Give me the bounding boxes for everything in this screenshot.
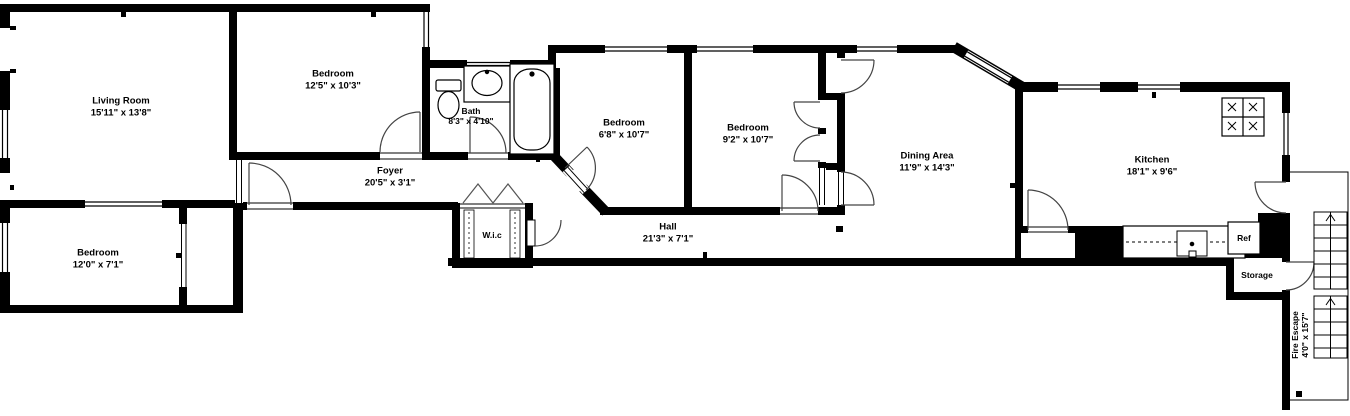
fixture-name: Ref xyxy=(1237,233,1251,243)
room-name: Dining Area xyxy=(899,151,954,163)
fixtures xyxy=(436,64,1348,400)
door-arc xyxy=(794,135,820,161)
door-arc xyxy=(841,172,874,205)
room-label-foyer: Foyer 20'5" x 3'1" xyxy=(365,166,416,189)
room-dims: 21'3" x 7'1" xyxy=(643,233,694,245)
sink-icon xyxy=(464,66,510,102)
floor-plan-drawing xyxy=(0,0,1350,416)
room-name: Bedroom xyxy=(305,69,361,81)
room-dims: 15'11" x 13'8" xyxy=(91,107,152,119)
room-name: Hall xyxy=(643,222,694,234)
door-arc xyxy=(782,175,818,211)
room-label-wic: W.i.c xyxy=(482,230,501,240)
door-arc xyxy=(841,60,874,93)
fridge-label: Ref xyxy=(1237,233,1251,243)
room-label-bedroom-mid-left: Bedroom 6'8" x 10'7" xyxy=(599,118,650,141)
door-arc xyxy=(1286,262,1314,290)
room-name: Bath xyxy=(448,106,493,116)
room-name: Foyer xyxy=(365,166,416,178)
room-dims: 4'0" x 15'7" xyxy=(1300,311,1310,359)
door-arc xyxy=(1028,190,1068,230)
floor-plan: Living Room 15'11" x 13'8" Bedroom 12'5"… xyxy=(0,0,1350,416)
room-label-living-room: Living Room 15'11" x 13'8" xyxy=(91,96,152,119)
door-arc xyxy=(527,220,561,246)
room-dims: 8'3" x 4'10" xyxy=(448,116,493,126)
kitchen-counter xyxy=(1123,226,1245,258)
room-dims: 9'2" x 10'7" xyxy=(723,134,774,146)
door-arc xyxy=(1255,182,1286,213)
room-name: W.i.c xyxy=(482,230,501,240)
room-name: Fire Escape xyxy=(1290,311,1300,359)
room-label-storage: Storage xyxy=(1241,270,1273,280)
room-label-hall: Hall 21'3" x 7'1" xyxy=(643,222,694,245)
room-label-bedroom-bottom: Bedroom 12'0" x 7'1" xyxy=(73,248,124,271)
room-name: Storage xyxy=(1241,270,1273,280)
kitchen-sink-icon xyxy=(1177,231,1207,257)
room-name: Kitchen xyxy=(1127,155,1178,167)
stairs-icon xyxy=(1314,212,1347,358)
room-dims: 18'1" x 9'6" xyxy=(1127,166,1178,178)
room-name: Bedroom xyxy=(599,118,650,130)
room-label-bedroom-top: Bedroom 12'5" x 10'3" xyxy=(305,69,361,92)
room-name: Bedroom xyxy=(73,248,124,260)
stove-icon xyxy=(1222,98,1264,136)
room-label-dining-area: Dining Area 11'9" x 14'3" xyxy=(899,151,954,174)
door-arc xyxy=(249,163,291,205)
room-dims: 6'8" x 10'7" xyxy=(599,129,650,141)
room-label-bath: Bath 8'3" x 4'10" xyxy=(448,106,493,126)
walls xyxy=(0,4,1302,410)
room-dims: 12'0" x 7'1" xyxy=(73,259,124,271)
bifold-doors xyxy=(463,184,523,203)
room-label-fire-escape: Fire Escape 4'0" x 15'7" xyxy=(1290,311,1310,359)
room-label-kitchen: Kitchen 18'1" x 9'6" xyxy=(1127,155,1178,178)
room-name: Bedroom xyxy=(723,123,774,135)
bay-window xyxy=(965,52,1012,82)
door-arc xyxy=(794,102,820,128)
room-name: Living Room xyxy=(91,96,152,108)
door-arc xyxy=(380,112,420,152)
room-dims: 12'5" x 10'3" xyxy=(305,80,361,92)
room-label-bedroom-mid-right: Bedroom 9'2" x 10'7" xyxy=(723,123,774,146)
bathtub-icon xyxy=(510,64,554,154)
room-dims: 20'5" x 3'1" xyxy=(365,177,416,189)
room-dims: 11'9" x 14'3" xyxy=(899,162,954,174)
